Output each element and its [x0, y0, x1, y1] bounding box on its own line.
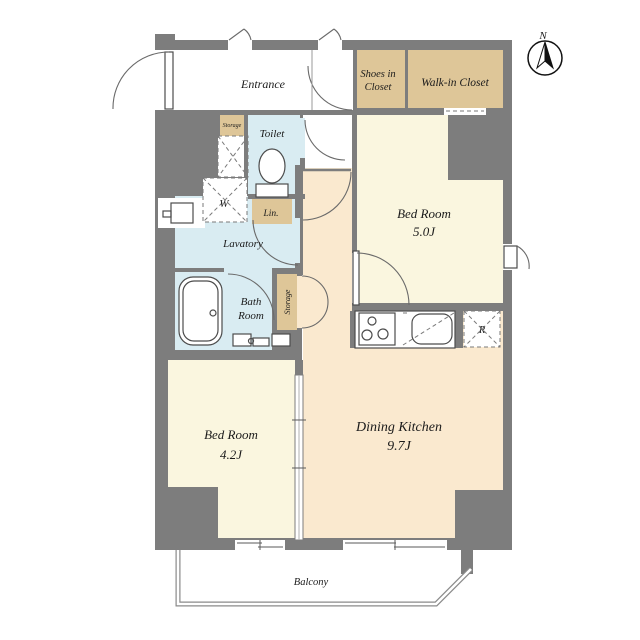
window-top-1-leaf — [229, 29, 244, 40]
hall-storage-label: Storage — [283, 289, 292, 314]
wall-right — [503, 40, 512, 550]
bath-room-label-2: Room — [237, 310, 264, 322]
dining-kitchen-size: 9.7J — [387, 439, 412, 454]
wall-segment — [448, 113, 503, 180]
wall-shoes-walkin — [405, 50, 408, 108]
bath-wall-unit — [272, 334, 290, 346]
compass-label: N — [538, 30, 547, 42]
window-top-2-swing — [334, 29, 341, 40]
wall-entrance-shoes — [353, 50, 357, 115]
bedroom-left-size: 4.2J — [220, 447, 243, 462]
wall-kitchen-top — [352, 303, 503, 311]
shoes-closet-label-2: Closet — [365, 82, 393, 93]
toilet-label: Toilet — [260, 128, 286, 140]
bedroom-right-label: Bed Room — [397, 206, 451, 221]
dining-kitchen-floor — [303, 348, 455, 540]
bath-shower-shelf — [253, 338, 269, 346]
bath-room-label-1: Bath — [241, 296, 262, 308]
walk-in-closet-label: Walk-in Closet — [421, 77, 489, 89]
kitchen-counter — [355, 311, 455, 348]
partition-top-tab — [295, 360, 303, 375]
compass: N — [528, 30, 562, 75]
bath-door-gap — [224, 267, 272, 273]
window-right-leaf — [504, 246, 517, 268]
toilet-tank — [256, 184, 288, 197]
wall-hall-bedroom — [352, 113, 357, 253]
balcony-label: Balcony — [294, 577, 329, 588]
lavatory-door-gap — [295, 218, 300, 263]
toilet-door-gap — [300, 118, 305, 158]
counter-stub-left — [350, 311, 355, 348]
wall-bottom — [155, 538, 512, 550]
shoes-closet-label-1: Shoes in — [360, 69, 395, 80]
refrigerator-label: R — [478, 325, 485, 336]
window-top-2 — [318, 40, 342, 50]
counter-stub-right — [455, 311, 463, 348]
entrance-door-leaf — [165, 52, 173, 109]
toilet-bowl — [259, 149, 285, 183]
window-top-1 — [228, 40, 252, 50]
walkin-opening — [444, 108, 486, 115]
dining-kitchen-label: Dining Kitchen — [355, 420, 442, 435]
window-top-1-swing — [244, 29, 251, 40]
washer-label: W — [219, 198, 229, 210]
wall-hall-lavatory-a — [295, 165, 300, 218]
bedroom-right-door-leaf — [353, 251, 359, 305]
hall-storage-door-gap — [297, 276, 305, 328]
wall-toilet-right-low — [300, 158, 305, 170]
window-top-2-leaf — [319, 29, 334, 40]
floor-plan: N Entrance Shoes in Closet Walk-in Close… — [0, 0, 640, 640]
wall-segment — [155, 350, 168, 490]
bedroom-left-label: Bed Room — [204, 427, 258, 442]
wall-entrance-bottom — [155, 110, 355, 115]
bedroom-right-size: 5.0J — [413, 224, 436, 239]
entrance-label: Entrance — [240, 77, 286, 91]
window-right-swing — [517, 246, 529, 269]
wall-hall-lavatory-b — [295, 263, 300, 272]
floor-plan-canvas: N Entrance Shoes in Closet Walk-in Close… — [0, 0, 640, 640]
entrance-door-swing — [113, 52, 169, 109]
entry-storage-label: Storage — [223, 123, 242, 129]
linen-label: Lin. — [262, 209, 278, 219]
lavatory-label: Lavatory — [222, 238, 263, 250]
